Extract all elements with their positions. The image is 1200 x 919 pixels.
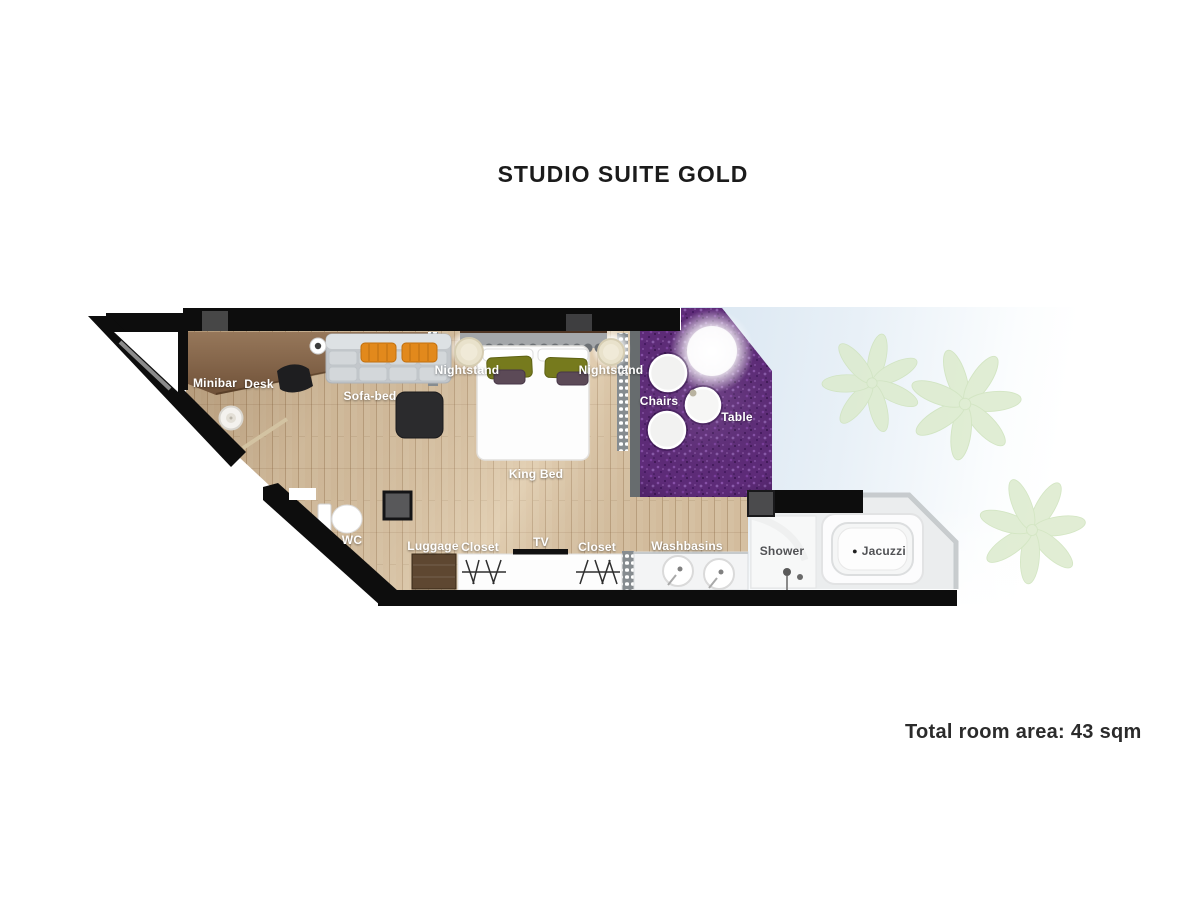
washbasin — [704, 559, 734, 589]
label-tv: TV — [533, 535, 549, 549]
hamper-box — [384, 492, 411, 519]
label-nightstand-left: Nightstand — [435, 363, 500, 377]
label-sofa-bed: Sofa-bed — [344, 389, 397, 403]
wall-bottom — [378, 590, 957, 606]
wall-vent — [566, 314, 592, 331]
label-nightstand-right: Nightstand — [579, 363, 644, 377]
curtain-track-bath — [622, 551, 634, 591]
label-desk: Desk — [244, 377, 274, 391]
floor-lamp — [220, 407, 243, 430]
label-luggage: Luggage — [407, 539, 458, 553]
ceiling-spotlight — [310, 338, 326, 354]
floorplan-page: STUDIO SUITE GOLD Total room area: 43 sq… — [0, 0, 1200, 919]
label-minibar: Minibar — [193, 376, 237, 390]
tv — [513, 549, 568, 555]
closet-unit — [458, 549, 622, 590]
label-jacuzzi: ●Jacuzzi — [852, 544, 906, 558]
carpet-edge — [630, 330, 640, 497]
bath-wall-post — [748, 491, 774, 516]
label-shower: Shower — [760, 544, 805, 558]
shower-drain — [783, 568, 791, 576]
ceiling-light-glow — [687, 326, 737, 376]
table-item — [690, 390, 697, 397]
label-king-bed: King Bed — [509, 467, 563, 481]
washbasin-counter — [634, 552, 748, 590]
luggage-rack — [412, 554, 456, 589]
total-area-note: Total room area: 43 sqm — [905, 721, 1142, 744]
wall-niche — [289, 488, 316, 500]
label-chairs: Chairs — [640, 394, 679, 408]
entry-door-panel — [202, 311, 228, 331]
page-title: STUDIO SUITE GOLD — [498, 161, 749, 188]
wall-top — [183, 308, 680, 331]
label-closet-left: Closet — [461, 540, 499, 554]
ottoman — [396, 392, 443, 438]
desk-chair — [277, 364, 313, 392]
washbasin — [663, 556, 693, 586]
round-chair — [649, 412, 685, 448]
round-chair — [650, 355, 686, 391]
label-closet-right: Closet — [578, 540, 616, 554]
floorplan-drawing — [0, 0, 1200, 919]
bullet-dot-icon: ● — [852, 546, 858, 556]
label-table: Table — [721, 410, 752, 424]
label-washbasins: Washbasins — [651, 539, 723, 553]
label-wc: WC — [342, 533, 362, 547]
